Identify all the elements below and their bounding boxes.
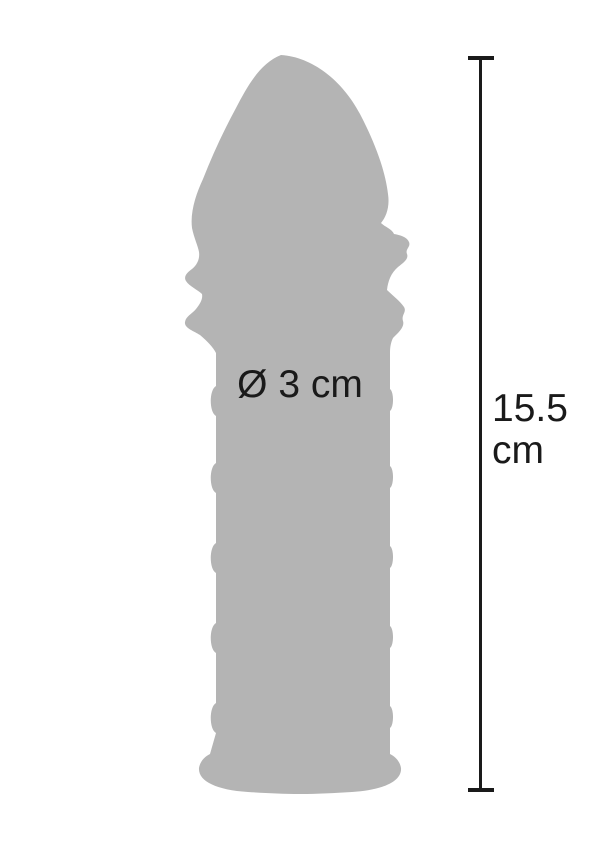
length-label: 15.5 cm [492,388,568,472]
length-unit: cm [492,430,568,472]
product-silhouette-shape [185,55,409,794]
measure-line-bottom-cap [468,788,494,792]
diameter-label: Ø 3 cm [150,365,450,404]
length-value: 15.5 [492,388,568,430]
measure-line [479,57,482,792]
product-dimension-diagram: Ø 3 cm 15.5 cm [0,0,600,850]
